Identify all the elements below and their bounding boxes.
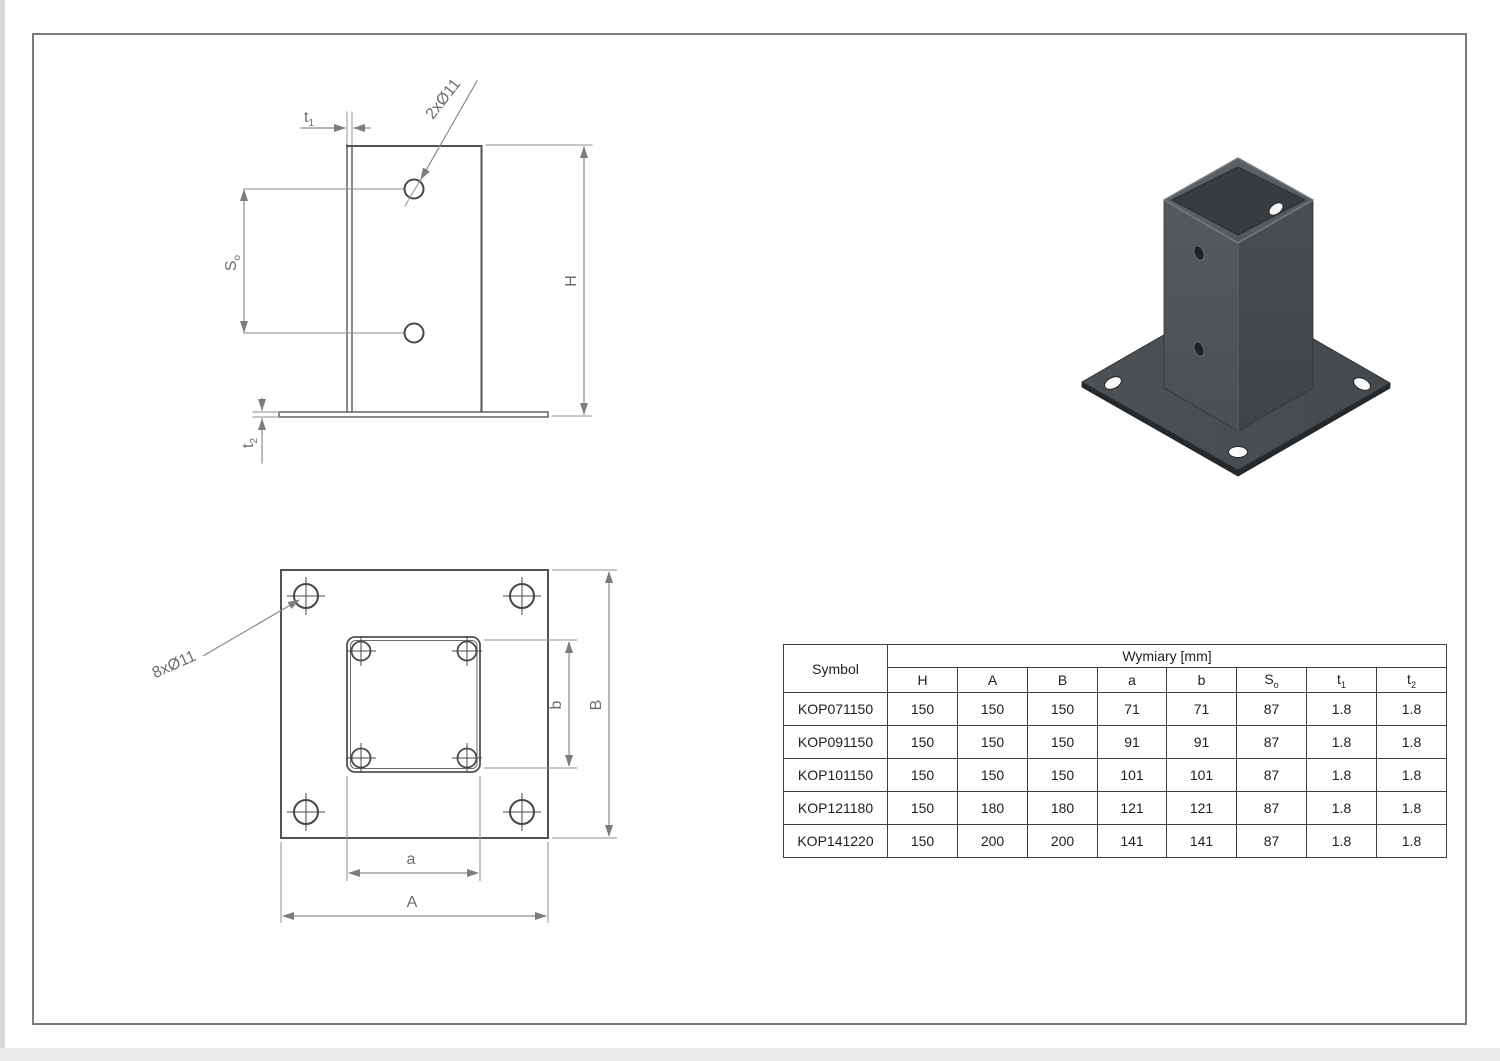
- post-hole-upper: [244, 180, 424, 199]
- value-cell: 150: [958, 726, 1028, 759]
- post-hole-lower: [244, 324, 424, 343]
- value-cell: 150: [1028, 693, 1098, 726]
- value-cell: 150: [1028, 726, 1098, 759]
- dimension-table: Symbol Wymiary [mm] HABabSot1t2 KOP07115…: [783, 644, 1447, 858]
- value-cell: 180: [1028, 792, 1098, 825]
- value-cell: 87: [1237, 693, 1307, 726]
- value-cell: 101: [1098, 759, 1167, 792]
- t2-dimension: [253, 398, 280, 463]
- symbol-cell: KOP091150: [784, 726, 888, 759]
- side-view: t1 2xØ11 So H t2: [223, 76, 592, 463]
- symbol-cell: KOP071150: [784, 693, 888, 726]
- value-cell: 71: [1098, 693, 1167, 726]
- value-cell: 1.8: [1307, 726, 1377, 759]
- value-cell: 87: [1237, 825, 1307, 858]
- value-cell: 150: [888, 792, 958, 825]
- value-cell: 121: [1167, 792, 1237, 825]
- t2-label: t2: [240, 438, 260, 448]
- drawing-sheet-page: { "side_view": { "hole_callout": "2xØ11"…: [0, 0, 1500, 1061]
- col-header-h: H: [888, 668, 958, 693]
- B-label: B: [588, 700, 605, 711]
- top-view: 8xØ11 b B a A: [150, 570, 617, 923]
- value-cell: 1.8: [1377, 759, 1447, 792]
- value-cell: 1.8: [1377, 726, 1447, 759]
- value-cell: 101: [1167, 759, 1237, 792]
- iso-plate-hole-front: [1229, 447, 1248, 458]
- h-label: H: [563, 275, 580, 287]
- table-row: KOP0911501501501509191871.81.8: [784, 726, 1447, 759]
- t1-label: t1: [304, 109, 314, 129]
- value-cell: 200: [1028, 825, 1098, 858]
- value-cell: 150: [888, 825, 958, 858]
- value-cell: 1.8: [1307, 825, 1377, 858]
- col-header-a: A: [958, 668, 1028, 693]
- value-cell: 1.8: [1377, 693, 1447, 726]
- col-header-a: a: [1098, 668, 1167, 693]
- col-header-b: b: [1167, 668, 1237, 693]
- A-label: A: [407, 894, 418, 911]
- col-header-b: B: [1028, 668, 1098, 693]
- value-cell: 87: [1237, 759, 1307, 792]
- symbol-cell: KOP121180: [784, 792, 888, 825]
- value-cell: 91: [1167, 726, 1237, 759]
- value-cell: 87: [1237, 792, 1307, 825]
- b-label: b: [548, 700, 565, 709]
- so-label: So: [223, 254, 243, 271]
- symbol-cell: KOP141220: [784, 825, 888, 858]
- technical-drawing-canvas: t1 2xØ11 So H t2: [0, 0, 1500, 1061]
- group-header: Wymiary [mm]: [888, 645, 1447, 668]
- table-row: KOP141220150200200141141871.81.8: [784, 825, 1447, 858]
- value-cell: 150: [888, 726, 958, 759]
- symbol-cell: KOP101150: [784, 759, 888, 792]
- value-cell: 150: [958, 693, 1028, 726]
- col-header-t2: t2: [1377, 668, 1447, 693]
- table-row: KOP121180150180180121121871.81.8: [784, 792, 1447, 825]
- isometric-view: [1082, 158, 1390, 476]
- value-cell: 141: [1167, 825, 1237, 858]
- value-cell: 180: [958, 792, 1028, 825]
- value-cell: 91: [1098, 726, 1167, 759]
- value-cell: 71: [1167, 693, 1237, 726]
- col-header-so: So: [1237, 668, 1307, 693]
- symbol-header: Symbol: [784, 645, 888, 693]
- value-cell: 1.8: [1377, 825, 1447, 858]
- value-cell: 1.8: [1307, 792, 1377, 825]
- table-row: KOP0711501501501507171871.81.8: [784, 693, 1447, 726]
- value-cell: 200: [958, 825, 1028, 858]
- hole-callout-2x: 2xØ11: [423, 76, 465, 123]
- value-cell: 87: [1237, 726, 1307, 759]
- value-cell: 1.8: [1307, 759, 1377, 792]
- value-cell: 1.8: [1377, 792, 1447, 825]
- value-cell: 141: [1098, 825, 1167, 858]
- a-label: a: [407, 851, 416, 868]
- col-header-t1: t1: [1307, 668, 1377, 693]
- value-cell: 1.8: [1307, 693, 1377, 726]
- plate-outline: [281, 570, 548, 838]
- value-cell: 150: [888, 759, 958, 792]
- hole-callout-8x: 8xØ11: [150, 648, 199, 682]
- value-cell: 121: [1098, 792, 1167, 825]
- value-cell: 150: [888, 693, 958, 726]
- table-row: KOP101150150150150101101871.81.8: [784, 759, 1447, 792]
- value-cell: 150: [1028, 759, 1098, 792]
- base-plate-outline: [279, 412, 548, 417]
- value-cell: 150: [958, 759, 1028, 792]
